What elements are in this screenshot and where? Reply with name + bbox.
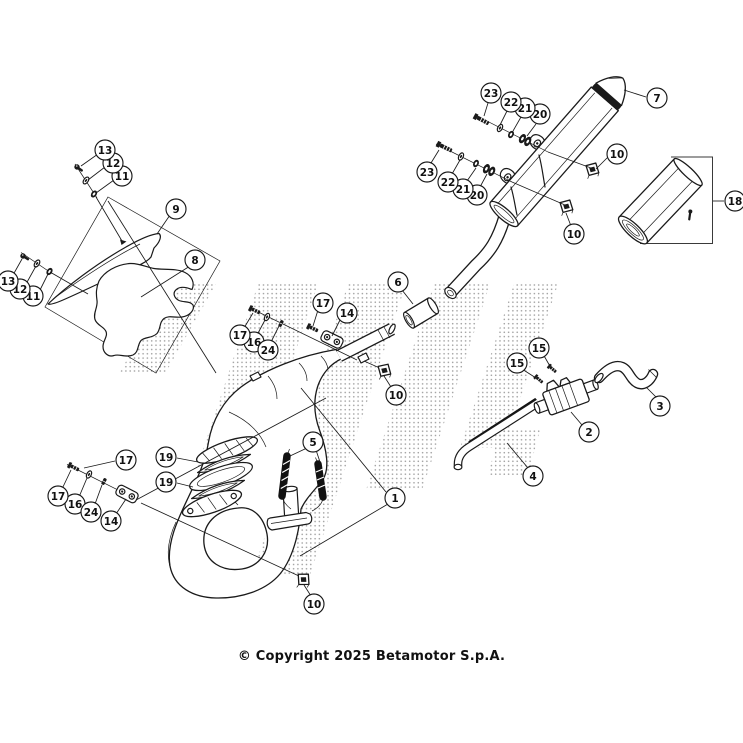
- svg-text:4: 4: [529, 471, 536, 483]
- callout-7[interactable]: 7: [647, 88, 667, 108]
- callout-9[interactable]: 9: [166, 199, 186, 219]
- callout-19[interactable]: 19: [156, 472, 176, 492]
- svg-text:19: 19: [159, 477, 174, 489]
- callout-10[interactable]: 10: [607, 144, 627, 164]
- callout-19[interactable]: 19: [156, 447, 176, 467]
- svg-text:14: 14: [104, 516, 119, 528]
- sleeve-kit-part18: [615, 156, 713, 248]
- svg-text:13: 13: [1, 276, 16, 288]
- callout-10[interactable]: 10: [564, 224, 584, 244]
- callout-23[interactable]: 23: [481, 83, 501, 103]
- callout-24[interactable]: 24: [258, 340, 278, 360]
- svg-text:17: 17: [316, 298, 331, 310]
- callout-14[interactable]: 14: [337, 303, 357, 323]
- svg-text:22: 22: [441, 177, 456, 189]
- callout-22[interactable]: 22: [501, 92, 521, 112]
- muffler-part7: [478, 58, 637, 230]
- copyright-text: © Copyright 2025 Betamotor S.p.A.: [0, 649, 743, 664]
- callout-5[interactable]: 5: [303, 432, 323, 452]
- svg-text:9: 9: [172, 204, 179, 216]
- svg-text:13: 13: [98, 145, 113, 157]
- callout-10[interactable]: 10: [386, 385, 406, 405]
- callout-14[interactable]: 14: [101, 511, 121, 531]
- callout-17[interactable]: 17: [116, 450, 136, 470]
- callout-15[interactable]: 15: [529, 338, 549, 358]
- callout-10[interactable]: 10: [304, 594, 324, 614]
- parts-diagram-page: 1234567891010101011111212131314141515161…: [0, 0, 743, 743]
- svg-text:2: 2: [585, 427, 592, 439]
- callout-23[interactable]: 23: [417, 162, 437, 182]
- callout-22[interactable]: 22: [438, 172, 458, 192]
- svg-text:24: 24: [84, 507, 99, 519]
- callout-17[interactable]: 17: [48, 486, 68, 506]
- svg-text:10: 10: [567, 229, 582, 241]
- svg-text:22: 22: [504, 97, 519, 109]
- svg-text:17: 17: [51, 491, 66, 503]
- svg-text:1: 1: [391, 493, 398, 505]
- callout-24[interactable]: 24: [81, 502, 101, 522]
- svg-text:17: 17: [119, 455, 134, 467]
- callout-3[interactable]: 3: [650, 396, 670, 416]
- callout-2[interactable]: 2: [579, 422, 599, 442]
- svg-text:23: 23: [420, 167, 435, 179]
- svg-text:3: 3: [656, 401, 663, 413]
- svg-text:8: 8: [191, 255, 198, 267]
- callout-6[interactable]: 6: [388, 272, 408, 292]
- svg-text:23: 23: [484, 88, 499, 100]
- svg-text:10: 10: [389, 390, 404, 402]
- svg-text:14: 14: [340, 308, 355, 320]
- svg-text:15: 15: [510, 358, 525, 370]
- svg-text:17: 17: [233, 330, 248, 342]
- valve-hose-part3: [593, 366, 657, 384]
- callout-1[interactable]: 1: [385, 488, 405, 508]
- callout-17[interactable]: 17: [313, 293, 333, 313]
- svg-text:19: 19: [159, 452, 174, 464]
- callout-17[interactable]: 17: [230, 325, 250, 345]
- svg-text:5: 5: [309, 437, 316, 449]
- svg-text:6: 6: [394, 277, 401, 289]
- svg-text:24: 24: [261, 345, 276, 357]
- callout-18[interactable]: 18: [725, 191, 743, 211]
- svg-text:10: 10: [610, 149, 625, 161]
- svg-text:16: 16: [68, 499, 83, 511]
- callout-13[interactable]: 13: [95, 140, 115, 160]
- callout-8[interactable]: 8: [185, 250, 205, 270]
- callout-4[interactable]: 4: [523, 466, 543, 486]
- callout-15[interactable]: 15: [507, 353, 527, 373]
- svg-text:15: 15: [532, 343, 547, 355]
- svg-text:10: 10: [307, 599, 322, 611]
- exhaust-valve-part2: [528, 367, 602, 420]
- svg-text:7: 7: [653, 93, 660, 105]
- heat-shield-group: [45, 197, 220, 373]
- callout-13[interactable]: 13: [0, 271, 18, 291]
- muffler-fasteners: [436, 113, 533, 177]
- svg-text:18: 18: [728, 196, 743, 208]
- exploded-diagram-svg: 1234567891010101011111212131314141515161…: [0, 0, 743, 743]
